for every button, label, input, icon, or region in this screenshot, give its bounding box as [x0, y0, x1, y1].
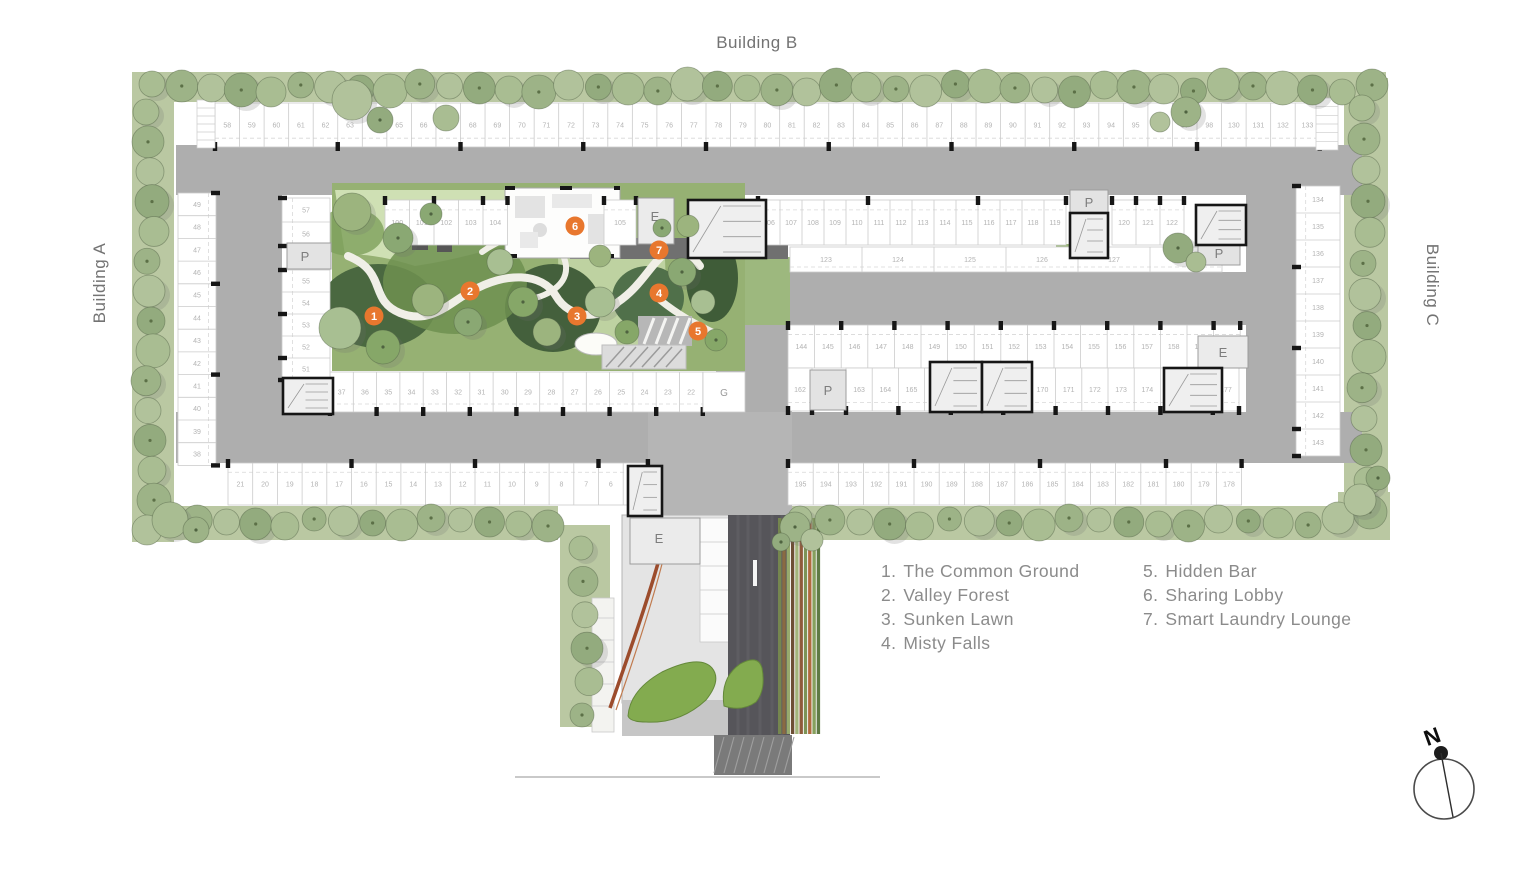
tree-icon	[1146, 511, 1172, 537]
stall-number: 55	[302, 279, 310, 286]
legend-label: Smart Laundry Lounge	[1165, 609, 1351, 629]
legend-column-1: 1.The Common Ground 2.Valley Forest 3.Su…	[881, 559, 1079, 655]
stair-core	[688, 200, 766, 258]
tree-icon	[1351, 406, 1377, 432]
entry-throat	[648, 412, 792, 515]
stall-number: 42	[193, 361, 201, 368]
stall-number: 184	[1072, 482, 1084, 489]
tree-icon	[671, 67, 705, 101]
tree-icon	[964, 506, 994, 536]
stall-number: 110	[851, 220, 862, 227]
tree-icon	[910, 75, 942, 107]
stall-number: 27	[571, 390, 579, 397]
stall-number: 20	[261, 482, 269, 489]
stall-number: 127	[1108, 257, 1120, 264]
tree-icon	[734, 75, 760, 101]
tree-icon	[533, 318, 561, 346]
parking-row: 37363534333231302928272625242322	[328, 372, 705, 416]
stall-number: 136	[1312, 251, 1324, 258]
marker-number: 4	[656, 288, 663, 300]
road	[740, 272, 1246, 325]
stair-core	[283, 378, 333, 414]
stall-number: 89	[984, 123, 992, 130]
stall-number: 173	[1115, 387, 1127, 394]
tree-icon	[801, 529, 823, 551]
stall-number: 132	[1277, 123, 1289, 130]
parking-row: 134135136137138139140141142143	[1292, 184, 1340, 458]
legend-item: 6.Sharing Lobby	[1143, 583, 1351, 607]
stall-number: 120	[1118, 220, 1130, 227]
planting-strip	[800, 518, 803, 734]
tree-icon	[332, 80, 372, 120]
stall-number: 8	[559, 482, 563, 489]
stall-number: 76	[665, 123, 673, 130]
stall-number: 182	[1122, 482, 1134, 489]
stall-number: 105	[614, 220, 626, 227]
stall-number: 113	[917, 220, 928, 227]
tree-icon	[691, 290, 715, 314]
stall-number: 80	[763, 123, 771, 130]
legend-item: 2.Valley Forest	[881, 583, 1079, 607]
stall-number: 52	[302, 345, 310, 352]
stall-number: 118	[1027, 220, 1038, 227]
parking-row: 494847464544434241403938	[178, 191, 220, 468]
stall-number: 34	[408, 390, 416, 397]
legend-label: Misty Falls	[903, 633, 990, 653]
stall-number: 66	[420, 123, 428, 130]
stall-number: 183	[1097, 482, 1109, 489]
stall-number: 188	[971, 482, 983, 489]
stall-number: 25	[617, 390, 625, 397]
stall-number: 54	[302, 301, 310, 308]
stall-number: 6	[609, 482, 613, 489]
stall-number: 16	[360, 482, 368, 489]
stall-number: 131	[1253, 123, 1265, 130]
stall-number: 14	[409, 482, 417, 489]
stall-number: 19	[286, 482, 294, 489]
stall-number: 162	[794, 387, 806, 394]
hatched-crossing	[638, 316, 692, 346]
stall-number: 51	[302, 367, 310, 374]
stall-number: 103	[465, 220, 477, 227]
stair-core	[1070, 213, 1108, 258]
stall-number: 58	[223, 123, 231, 130]
stall-number: 148	[902, 344, 914, 351]
tree-icon	[386, 509, 418, 541]
stall-number: 119	[1049, 220, 1060, 227]
stall-number: 79	[739, 123, 747, 130]
stall-number: 91	[1034, 123, 1042, 130]
stall-number: 62	[322, 123, 330, 130]
tree-icon	[589, 245, 611, 267]
tree-icon	[793, 78, 821, 106]
tree-icon	[585, 287, 615, 317]
small-stall-strip	[197, 100, 215, 148]
tree-icon	[1355, 217, 1385, 247]
stall-number: 125	[964, 257, 976, 264]
stall-number: 157	[1141, 344, 1153, 351]
stall-number: 61	[297, 123, 305, 130]
stall-number: 147	[875, 344, 887, 351]
stall-number: 116	[983, 220, 994, 227]
legend-label: Sharing Lobby	[1165, 585, 1283, 605]
stall-number: 186	[1022, 482, 1034, 489]
stall-number: 57	[302, 208, 310, 215]
stall-number: 193	[845, 482, 857, 489]
stall-number: 164	[879, 387, 891, 394]
tree-icon	[448, 508, 472, 532]
road	[1246, 145, 1296, 463]
tree-icon	[1352, 156, 1380, 184]
tree-icon	[1149, 74, 1179, 104]
tree-icon	[1344, 484, 1376, 516]
stall-number: 95	[1132, 123, 1140, 130]
tree-icon	[1349, 278, 1381, 310]
tree-icon	[412, 284, 444, 316]
stall-number: 15	[385, 482, 393, 489]
stall-number: 29	[524, 390, 532, 397]
stall-number: 158	[1168, 344, 1180, 351]
tree-icon	[133, 99, 159, 125]
parking-row: 5756	[278, 196, 330, 248]
planting-strip	[787, 518, 790, 734]
stall-number: 17	[335, 482, 343, 489]
stall-number: 172	[1089, 387, 1101, 394]
stall-number: 181	[1148, 482, 1160, 489]
stall-number: 39	[193, 429, 201, 436]
stall-number: 102	[440, 220, 452, 227]
tree-icon	[1349, 95, 1375, 121]
stall-number: 151	[982, 344, 994, 351]
tree-icon	[152, 502, 188, 538]
stall-number: 185	[1047, 482, 1059, 489]
stall-number: 121	[1142, 220, 1154, 227]
tree-icon	[139, 71, 165, 97]
tree-icon	[1263, 508, 1293, 538]
legend-num: 2.	[881, 585, 896, 605]
stall-number: 59	[248, 123, 256, 130]
tree-icon	[135, 398, 161, 424]
stall-number: 144	[795, 344, 807, 351]
marker-number: 3	[574, 311, 580, 323]
tree-icon	[373, 74, 407, 108]
tree-icon	[213, 509, 239, 535]
stall-number: 140	[1312, 359, 1324, 366]
legend-item: 4.Misty Falls	[881, 631, 1079, 655]
stall-number: 179	[1198, 482, 1210, 489]
marker-number: 5	[695, 326, 701, 338]
amenity-marker-4: 4	[650, 284, 669, 303]
compass-needle	[1441, 753, 1453, 817]
stall-number: 111	[874, 220, 885, 227]
stall-number: 26	[594, 390, 602, 397]
stall-number: 194	[820, 482, 832, 489]
parking-row: 105	[602, 196, 638, 245]
tree-icon	[968, 69, 1002, 103]
tree-icon	[136, 334, 170, 368]
legend-label: Hidden Bar	[1165, 561, 1257, 581]
stall-number: 81	[788, 123, 796, 130]
tree-icon	[572, 602, 598, 628]
stall-number: 48	[193, 225, 201, 232]
tree-icon	[851, 72, 881, 102]
stall-number: 153	[1035, 344, 1047, 351]
tree-icon	[495, 76, 523, 104]
stall-number: 135	[1312, 224, 1324, 231]
tree-icon	[271, 512, 299, 540]
tree-icon	[136, 158, 164, 186]
planting-strip	[795, 518, 798, 734]
stall-number: 139	[1312, 332, 1324, 339]
stall-number: 23	[664, 390, 672, 397]
tree-icon	[575, 668, 603, 696]
room-label-P: P	[301, 249, 310, 264]
north-letter: N	[1420, 722, 1443, 751]
planting-strip	[791, 518, 794, 734]
tree-icon	[133, 275, 165, 307]
stall-number: 87	[935, 123, 943, 130]
tree-icon	[569, 536, 593, 560]
tree-icon	[677, 215, 699, 237]
trellis	[602, 345, 686, 369]
tree-icon	[1023, 509, 1055, 541]
stall-number: 22	[687, 390, 695, 397]
marker-number: 1	[371, 311, 377, 323]
amenity-marker-2: 2	[461, 282, 480, 301]
stall-number: 73	[592, 123, 600, 130]
stall-number: 150	[955, 344, 967, 351]
stair-core	[982, 362, 1032, 412]
stall-number: 123	[820, 257, 832, 264]
tree-icon	[554, 70, 584, 100]
tree-icon	[506, 511, 532, 537]
stall-number: 171	[1063, 387, 1075, 394]
stall-number: 9	[535, 482, 539, 489]
legend-num: 3.	[881, 609, 896, 629]
room-label-P: P	[1085, 195, 1094, 210]
stall-number: 154	[1061, 344, 1073, 351]
stall-number: 43	[193, 338, 201, 345]
tree-icon	[1087, 508, 1111, 532]
room-label-P: P	[1215, 246, 1224, 261]
legend-num: 5.	[1143, 561, 1158, 581]
stall-number: 53	[302, 323, 310, 330]
tree-icon	[1186, 252, 1206, 272]
legend-item: 7.Smart Laundry Lounge	[1143, 607, 1351, 631]
stall-number: 7	[584, 482, 588, 489]
tree-icon	[1150, 112, 1170, 132]
stall-number: 71	[543, 123, 551, 130]
legend-label: Valley Forest	[903, 585, 1009, 605]
site-plan-page: Building B Building A Building C	[0, 0, 1536, 869]
stall-number: 114	[939, 220, 950, 227]
tree-icon	[437, 73, 463, 99]
parking-row: 1951941931921911901891881871861851841831…	[786, 459, 1244, 505]
stall-number: 92	[1058, 123, 1066, 130]
stall-number: 107	[785, 220, 797, 227]
stall-number: 187	[996, 482, 1008, 489]
legend-item: 5.Hidden Bar	[1143, 559, 1351, 583]
stall-number: 133	[1302, 123, 1314, 130]
stall-number: 163	[853, 387, 865, 394]
parking-row: 123124125126127128	[790, 247, 1222, 272]
stall-number: 10	[508, 482, 516, 489]
tree-icon	[847, 509, 873, 535]
stall-number: 109	[829, 220, 841, 227]
stall-number: 192	[870, 482, 882, 489]
stall-number: 37	[338, 390, 346, 397]
tree-icon	[487, 249, 513, 275]
stall-number: 69	[493, 123, 501, 130]
stall-number: 104	[489, 220, 501, 227]
stall-number: 93	[1083, 123, 1091, 130]
compass: N	[1414, 722, 1474, 819]
stall-number: 83	[837, 123, 845, 130]
stall-number: 165	[906, 387, 918, 394]
stall-number: 45	[193, 293, 201, 300]
room-label-E: E	[1219, 345, 1228, 360]
stall-number: 180	[1173, 482, 1185, 489]
tree-icon	[198, 74, 226, 102]
stall-number: 189	[946, 482, 958, 489]
stall-number: 143	[1312, 440, 1324, 447]
stall-number: 137	[1312, 278, 1324, 285]
lane-marking	[753, 560, 757, 586]
stall-number: 72	[567, 123, 575, 130]
tree-icon	[612, 73, 644, 105]
legend-num: 1.	[881, 561, 896, 581]
stall-number: 152	[1008, 344, 1020, 351]
stall-number: 13	[434, 482, 442, 489]
stall-number: 170	[1037, 387, 1049, 394]
parking-row: 21201918171615141312111098765	[226, 459, 650, 505]
tree-icon	[333, 193, 371, 231]
road	[216, 145, 282, 463]
legend-item: 3.Sunken Lawn	[881, 607, 1079, 631]
legend-num: 4.	[881, 633, 896, 653]
tree-icon	[1352, 340, 1386, 374]
stall-number: 35	[384, 390, 392, 397]
stall-number: 65	[395, 123, 403, 130]
marker-number: 7	[656, 245, 662, 257]
amenity-marker-1: 1	[365, 307, 384, 326]
marker-number: 2	[467, 286, 473, 298]
tree-icon	[1032, 77, 1058, 103]
stall-number: 24	[641, 390, 649, 397]
stall-number: 134	[1312, 197, 1324, 204]
stall-number: 31	[478, 390, 486, 397]
stall-number: 130	[1228, 123, 1240, 130]
stall-number: 85	[886, 123, 894, 130]
stall-number: 178	[1223, 482, 1235, 489]
stall-number: 174	[1141, 387, 1153, 394]
room-label-G: G	[720, 388, 728, 399]
stall-number: 44	[193, 315, 201, 322]
stair-core	[1196, 205, 1246, 245]
stair-core	[628, 466, 662, 516]
elevator-room	[630, 518, 700, 564]
stall-number: 138	[1312, 305, 1324, 312]
stall-number: 141	[1312, 386, 1324, 393]
tree-icon	[1266, 71, 1300, 105]
stall-number: 41	[193, 383, 201, 390]
green-patch	[745, 257, 790, 325]
stall-number: 195	[795, 482, 807, 489]
amenity-marker-6: 6	[566, 217, 585, 236]
entry-rooms	[700, 518, 730, 642]
tree-icon	[433, 105, 459, 131]
amenity-marker-5: 5	[689, 322, 708, 341]
stall-number: 12	[459, 482, 467, 489]
stall-number: 77	[690, 123, 698, 130]
tree-icon	[319, 307, 361, 349]
tree-icon	[1207, 68, 1239, 100]
stall-number: 32	[454, 390, 462, 397]
stall-number: 49	[193, 202, 201, 209]
stall-number: 122	[1166, 220, 1178, 227]
stair-core	[930, 362, 982, 412]
stall-number: 88	[960, 123, 968, 130]
stall-number: 11	[484, 482, 491, 489]
amenity-marker-7: 7	[650, 241, 669, 260]
stall-number: 115	[961, 220, 972, 227]
stall-number: 112	[895, 220, 906, 227]
stall-number: 47	[193, 247, 201, 254]
stall-number: 145	[822, 344, 834, 351]
tree-icon	[256, 77, 286, 107]
marker-number: 6	[572, 221, 578, 233]
stall-number: 156	[1115, 344, 1127, 351]
stall-number: 38	[193, 452, 201, 459]
stall-number: 86	[911, 123, 919, 130]
legend-column-2: 5.Hidden Bar 6.Sharing Lobby 7.Smart Lau…	[1143, 559, 1351, 631]
stall-number: 78	[714, 123, 722, 130]
parking-row: 1061071081091101111121131141151161171181…	[756, 196, 1068, 245]
stall-number: 90	[1009, 123, 1017, 130]
stall-number: 142	[1312, 413, 1324, 420]
stall-number: 36	[361, 390, 369, 397]
stall-number: 94	[1107, 123, 1115, 130]
stall-number: 56	[302, 232, 310, 239]
stall-number: 117	[1005, 220, 1016, 227]
legend-label: Sunken Lawn	[903, 609, 1013, 629]
site-plan-drawing: 5859606162636465666768697071727374757677…	[0, 0, 1536, 869]
legend-label: The Common Ground	[903, 561, 1079, 581]
stall-number: 28	[547, 390, 555, 397]
stall-number: 30	[501, 390, 509, 397]
stall-number: 21	[236, 482, 244, 489]
stall-number: 155	[1088, 344, 1100, 351]
stall-number: 84	[862, 123, 870, 130]
tree-icon	[906, 512, 934, 540]
stall-number: 149	[928, 344, 940, 351]
stall-number: 124	[892, 257, 904, 264]
tree-icon	[328, 506, 358, 536]
tree-icon	[1090, 71, 1118, 99]
amenity-marker-3: 3	[568, 307, 587, 326]
stall-number: 74	[616, 123, 624, 130]
tree-icon	[1204, 505, 1232, 533]
legend-num: 7.	[1143, 609, 1158, 629]
legend-num: 6.	[1143, 585, 1158, 605]
stall-number: 68	[469, 123, 477, 130]
stall-number: 82	[813, 123, 821, 130]
tree-icon	[138, 456, 166, 484]
room-label-P: P	[824, 383, 833, 398]
legend-item: 1.The Common Ground	[881, 559, 1079, 583]
tree-icon	[139, 216, 169, 246]
stall-number: 70	[518, 123, 526, 130]
